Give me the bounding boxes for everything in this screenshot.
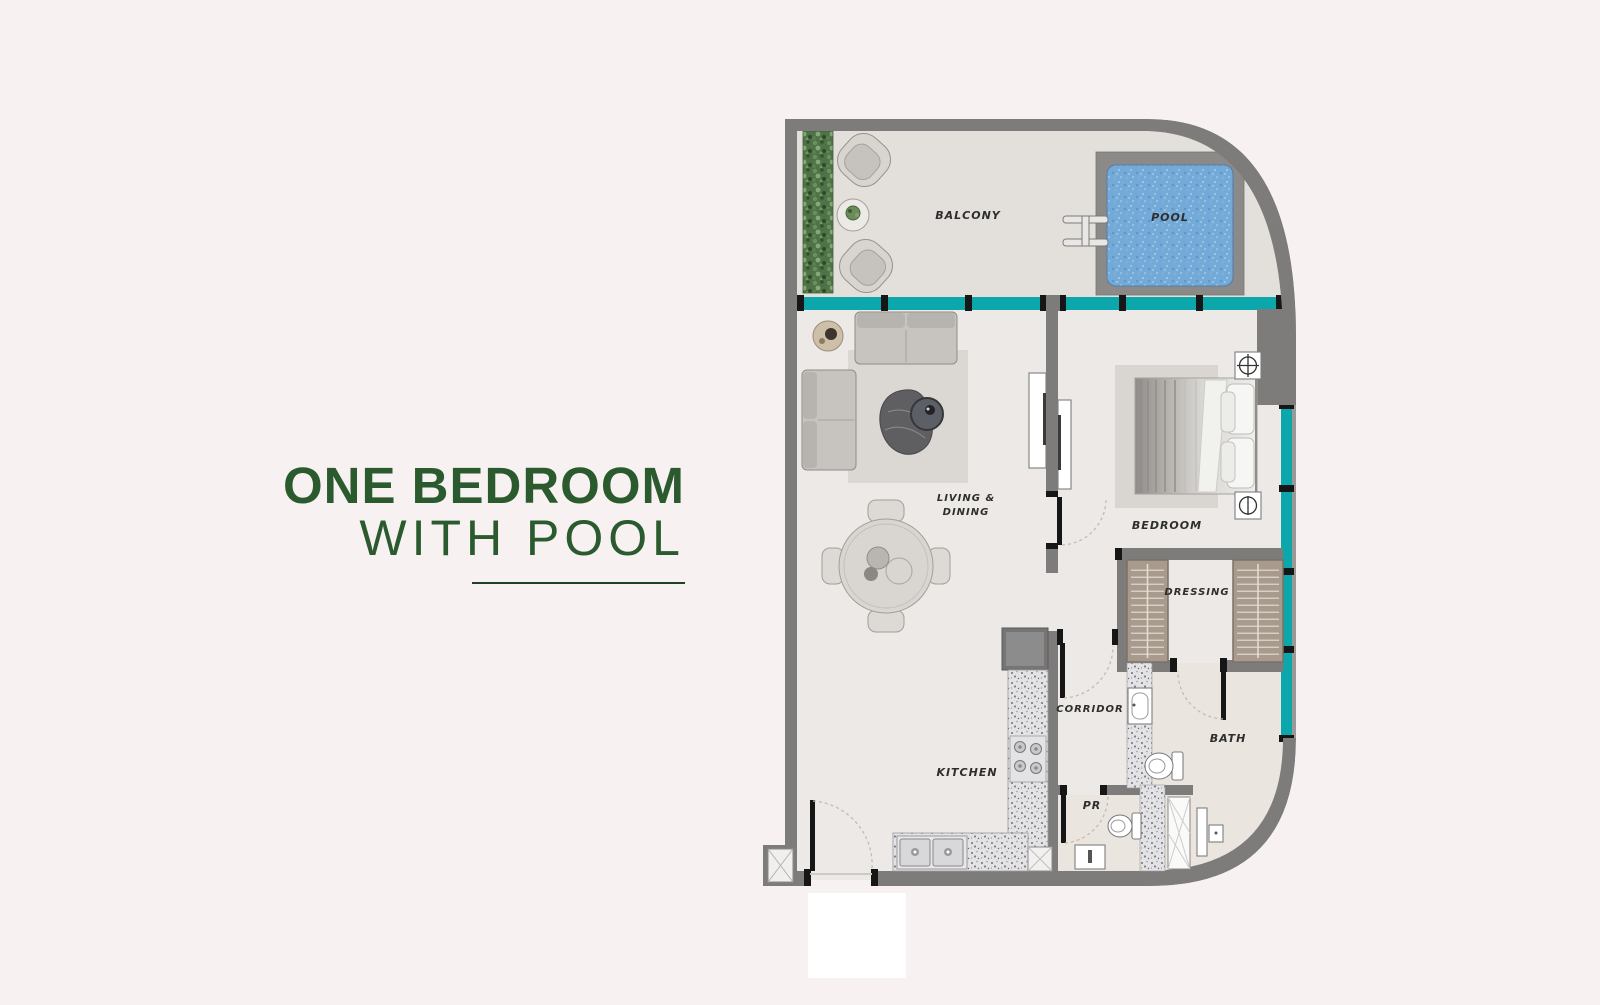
nightstand-top — [1235, 352, 1261, 379]
nightstand-bottom — [1235, 492, 1261, 519]
label-pr: PR — [1083, 799, 1102, 812]
white-patch — [808, 893, 906, 978]
bath-toilet — [1145, 752, 1183, 780]
label-dressing: DRESSING — [1164, 587, 1229, 598]
balcony-hedge — [803, 131, 833, 293]
label-living-2: DINING — [943, 507, 990, 518]
stove — [1010, 736, 1046, 782]
bedroom-furniture — [1115, 352, 1261, 519]
pr-door — [1061, 795, 1066, 843]
sofa-top — [855, 312, 957, 364]
floor-plan: BALCONY POOL LIVING & DINING BEDROOM DRE… — [0, 0, 1600, 1005]
pr-side-wall — [1140, 785, 1165, 871]
window-strip-top — [797, 295, 1283, 311]
plant-pot — [813, 321, 843, 351]
label-bath: BATH — [1210, 732, 1247, 745]
corridor-door — [1060, 643, 1065, 698]
bath-door — [1221, 672, 1226, 720]
label-balcony: BALCONY — [935, 209, 1001, 222]
label-living-1: LIVING & — [937, 493, 995, 504]
bedroom-door — [1057, 497, 1062, 545]
pool-water — [1107, 165, 1233, 286]
label-corridor: CORRIDOR — [1056, 704, 1123, 715]
entry-door — [810, 800, 815, 871]
kitchen-sink — [897, 836, 967, 869]
page: ONE BEDROOM WITH POOL — [0, 0, 1600, 1005]
wardrobe-right — [1233, 560, 1283, 662]
label-bedroom: BEDROOM — [1132, 519, 1202, 532]
label-pool: POOL — [1151, 211, 1189, 224]
pr-cabinet — [1075, 845, 1105, 869]
pr-toilet — [1108, 813, 1141, 839]
label-kitchen: KITCHEN — [936, 766, 997, 779]
wardrobe-left — [1127, 560, 1168, 662]
sofa-left — [802, 370, 856, 470]
balcony-table — [837, 199, 869, 231]
bath-sink — [1128, 688, 1152, 724]
bedroom-corner-wall — [1257, 309, 1296, 405]
kitchen-column — [1028, 847, 1052, 871]
shower — [1168, 797, 1190, 869]
bed — [1135, 378, 1257, 494]
